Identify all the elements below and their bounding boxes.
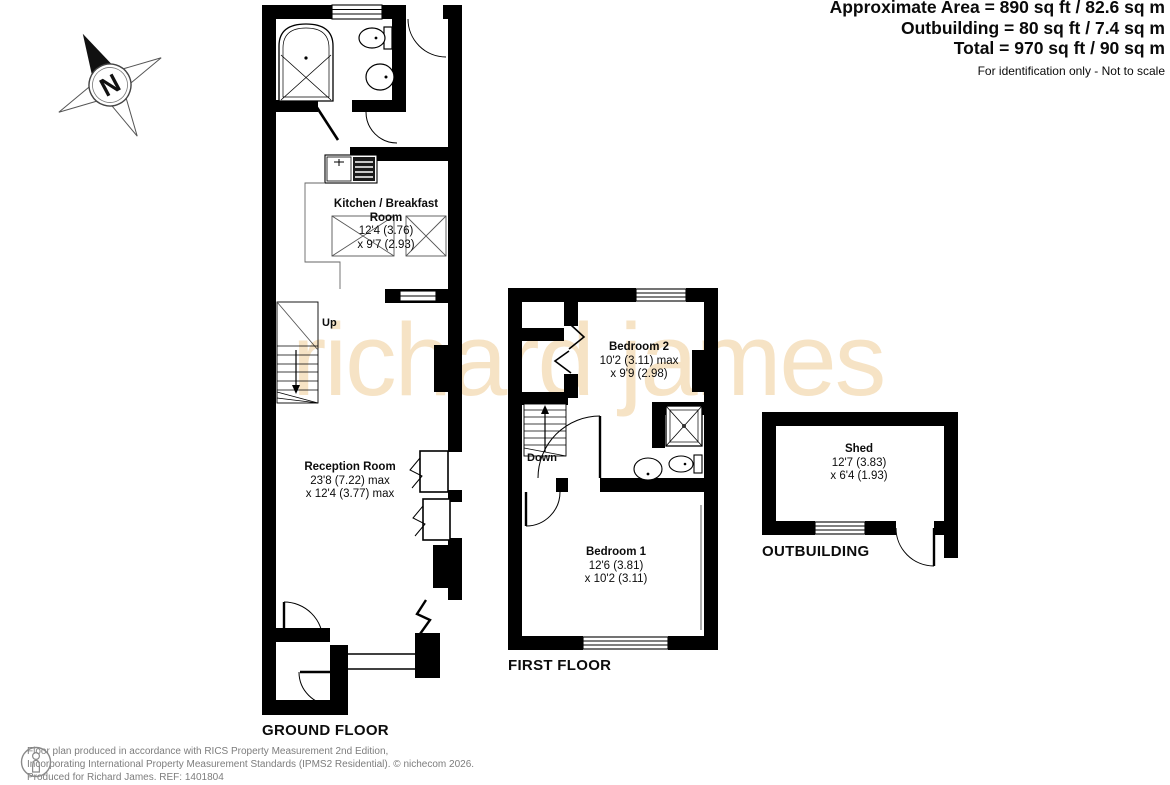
footer-line-3: Produced for Richard James. REF: 1401804 <box>27 771 474 784</box>
footer-line-1: Floor plan produced in accordance with R… <box>27 745 474 758</box>
window <box>583 637 668 649</box>
kitchen-name: Kitchen / Breakfast Room <box>321 198 451 225</box>
shed-dim-1: 12'7 (3.83) <box>798 457 920 471</box>
kitchen-sink-stove-icon <box>325 155 377 183</box>
door-arc <box>366 112 397 143</box>
door-opening-zigzag <box>417 600 430 634</box>
window <box>815 522 865 534</box>
shed-name: Shed <box>798 443 920 457</box>
stairs-down-label: Down <box>527 452 557 464</box>
total-area-line: Total = 970 sq ft / 90 sq m <box>830 38 1165 59</box>
compass-rose: N <box>32 7 189 164</box>
reception-dim-1: 23'8 (7.22) max <box>280 475 420 489</box>
window <box>636 289 686 301</box>
window <box>400 291 436 301</box>
approximate-area-line: Approximate Area = 890 sq ft / 82.6 sq m <box>830 0 1165 18</box>
footer-line-2: Incorporating International Property Mea… <box>27 758 474 771</box>
first-floor-label: FIRST FLOOR <box>508 657 611 674</box>
bathtub-icon <box>279 24 333 101</box>
bedroom1-dim-2: x 10'2 (3.11) <box>546 573 686 587</box>
door-arc <box>526 492 560 526</box>
reception-label: Reception Room 23'8 (7.22) max x 12'4 (3… <box>280 461 420 502</box>
kitchen-dim-1: 12'4 (3.76) <box>321 225 451 239</box>
sink-icon <box>366 64 394 90</box>
outbuilding-walls <box>762 412 958 558</box>
kitchen-label: Kitchen / Breakfast Room 12'4 (3.76) x 9… <box>321 198 451 252</box>
toilet-icon <box>359 27 392 49</box>
shed-label: Shed 12'7 (3.83) x 6'4 (1.93) <box>798 443 920 484</box>
porch-window <box>348 653 415 671</box>
kitchen-dim-2: x 9'7 (2.93) <box>321 239 451 253</box>
watermark: richard james <box>292 306 884 414</box>
door-leaf <box>316 106 338 140</box>
reception-name: Reception Room <box>280 461 420 475</box>
bedroom1-dim-1: 12'6 (3.81) <box>546 560 686 574</box>
window <box>332 5 382 19</box>
outbuilding-area-line: Outbuilding = 80 sq ft / 7.4 sq m <box>830 18 1165 39</box>
floorplan-page: N <box>0 0 1170 785</box>
bedroom1-label: Bedroom 1 12'6 (3.81) x 10'2 (3.11) <box>546 546 686 587</box>
shed-dim-2: x 6'4 (1.93) <box>798 470 920 484</box>
outbuilding-label: OUTBUILDING <box>762 543 869 560</box>
ground-floor-label: GROUND FLOOR <box>262 722 389 739</box>
door-arc <box>408 19 446 57</box>
area-summary: Approximate Area = 890 sq ft / 82.6 sq m… <box>830 0 1165 78</box>
door-arc <box>896 528 934 566</box>
reception-dim-2: x 12'4 (3.77) max <box>280 488 420 502</box>
bedroom1-name: Bedroom 1 <box>546 546 686 560</box>
footer-logo-icon <box>20 745 54 781</box>
toilet-icon <box>669 455 702 473</box>
footer: Floor plan produced in accordance with R… <box>20 745 474 784</box>
sink-icon <box>634 458 662 480</box>
scale-disclaimer: For identification only - Not to scale <box>830 64 1165 78</box>
door-opening <box>413 499 450 540</box>
